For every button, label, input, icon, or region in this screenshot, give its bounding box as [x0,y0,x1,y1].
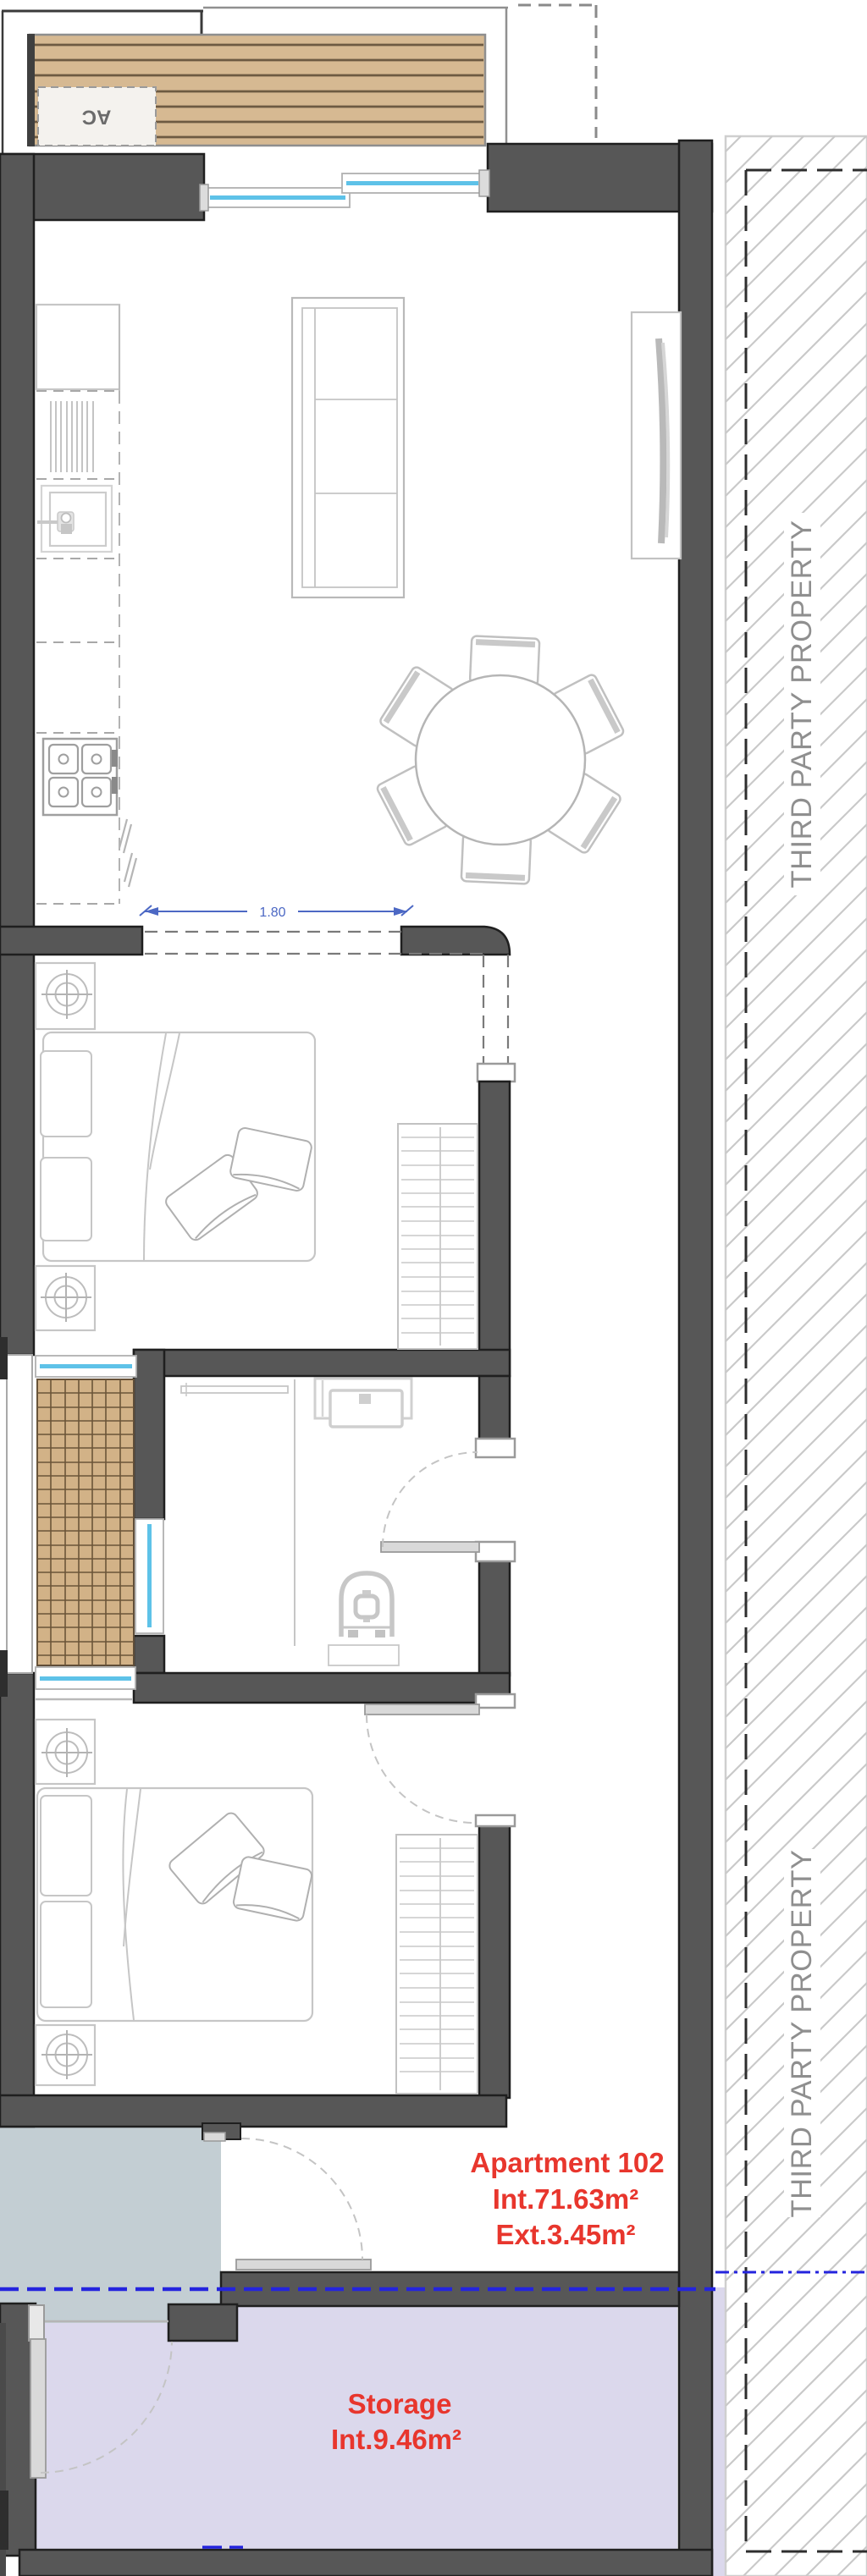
svg-text:Int.9.46m²: Int.9.46m² [331,2424,461,2455]
svg-text:Storage: Storage [348,2388,452,2419]
svg-text:Apartment 102: Apartment 102 [470,2147,664,2178]
svg-text:Ext.3.45m²: Ext.3.45m² [495,2219,635,2250]
svg-text:THIRD PARTY PROPERTY: THIRD PARTY PROPERTY [786,520,818,889]
svg-text:1.80: 1.80 [259,905,285,920]
svg-text:THIRD PARTY PROPERTY: THIRD PARTY PROPERTY [786,1850,818,2218]
svg-text:Int.71.63m²: Int.71.63m² [493,2183,638,2215]
svg-text:AC: AC [82,106,112,129]
